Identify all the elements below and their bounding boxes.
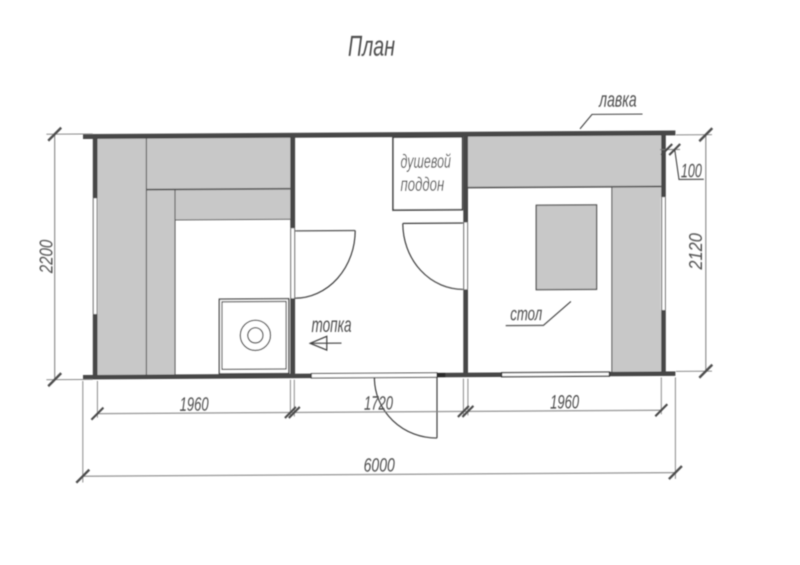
svg-text:топка: топка (312, 313, 352, 337)
svg-text:1960: 1960 (550, 391, 579, 413)
svg-text:1960: 1960 (180, 394, 209, 416)
svg-text:6000: 6000 (364, 455, 395, 477)
svg-text:поддон: поддон (401, 175, 445, 196)
svg-text:стол: стол (510, 304, 542, 325)
svg-text:2200: 2200 (35, 239, 56, 274)
svg-text:лавка: лавка (598, 89, 636, 112)
svg-text:2120: 2120 (685, 232, 706, 270)
svg-text:100: 100 (681, 160, 702, 182)
svg-text:План: План (348, 29, 395, 61)
svg-text:душевой: душевой (401, 152, 452, 173)
svg-text:1720: 1720 (364, 393, 393, 415)
